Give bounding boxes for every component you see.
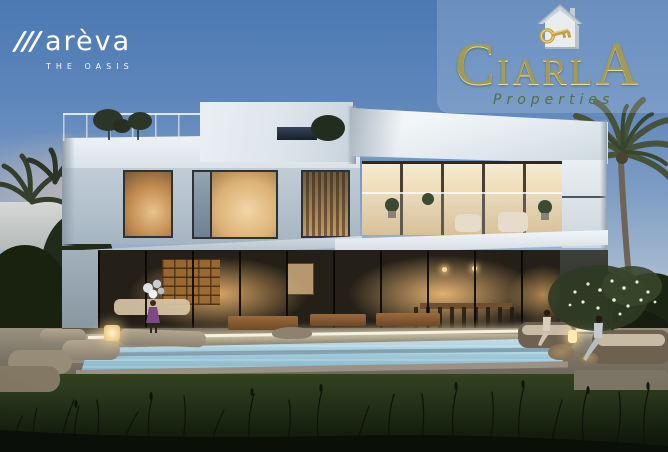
ciarla-letter-a: A — [595, 34, 640, 94]
mareva-logo: arèva THE OASIS — [18, 28, 168, 71]
balloon-cluster — [143, 280, 164, 299]
ciarla-logo: C IARL A Properties — [437, 0, 668, 113]
flowering-tree — [548, 265, 662, 331]
ciarla-tagline: Properties — [493, 92, 614, 108]
seated-woman-left — [538, 310, 551, 346]
penthouse-shrub — [311, 115, 345, 141]
mareva-tagline: THE OASIS — [46, 62, 168, 71]
roof-terrace-trees — [93, 109, 152, 140]
mareva-wordmark: arèva — [45, 28, 131, 55]
villa-marketing-image: arèva THE OASIS C IARL A Prop — [0, 0, 668, 452]
ciarla-letter-c: C — [455, 34, 497, 94]
ciarla-letters-iarl: IARL — [497, 54, 595, 91]
ciarla-wordmark: C IARL A — [455, 34, 641, 94]
child-with-balloons — [143, 280, 164, 333]
upper-floor-plants — [385, 193, 552, 220]
foreground-shadow — [0, 430, 668, 452]
